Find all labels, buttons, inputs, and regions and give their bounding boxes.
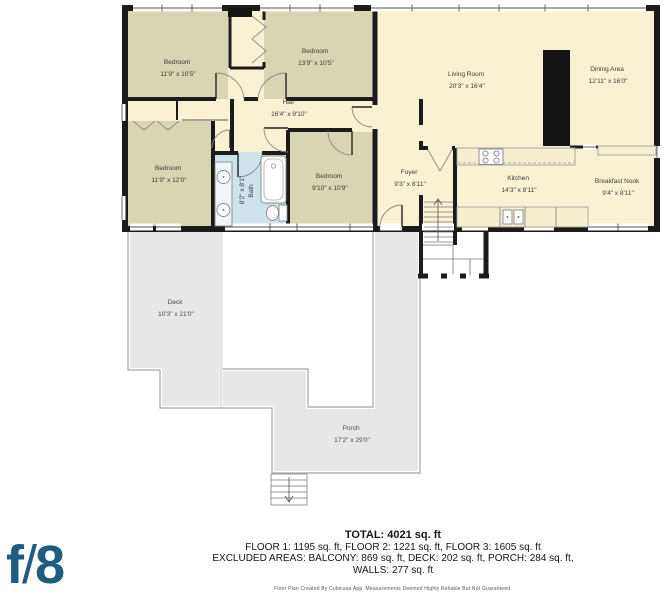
bathtub (261, 156, 286, 203)
porch-stairs (271, 474, 307, 505)
sink (217, 204, 230, 217)
walls-area: WALLS: 277 sq. ft (122, 565, 664, 577)
total-area: TOTAL: 4021 sq. ft (122, 530, 664, 542)
kitchen-counter-top (457, 148, 575, 165)
f8-logo: f/8 (6, 538, 63, 592)
area-summary: TOTAL: 4021 sq. ft FLOOR 1: 1195 sq. ft,… (122, 530, 664, 596)
toilet (267, 205, 288, 221)
floor-areas: FLOOR 1: 1195 sq. ft, FLOOR 2: 1221 sq. … (122, 542, 664, 554)
house-floors (122, 5, 660, 232)
breakfast-bar (598, 146, 656, 155)
logo-slash: / (22, 535, 35, 595)
stove (479, 149, 503, 165)
outdoor-areas (128, 230, 420, 505)
chimney (543, 50, 570, 146)
bedroom1-area (127, 10, 228, 99)
floor-plan-page: Bedroom 11'9" x 10'5" Bedroom 13'9" x 10… (0, 0, 664, 600)
excluded-areas: EXCLUDED AREAS: BALCONY: 869 sq. ft, DEC… (122, 553, 664, 565)
sink (217, 171, 230, 184)
disclaimer: Floor Plan Created By Cubicasa App. Meas… (122, 584, 664, 596)
bedroom3-area (124, 121, 213, 227)
floor-plan-svg: Bedroom 11'9" x 10'5" Bedroom 13'9" x 10… (0, 0, 664, 600)
